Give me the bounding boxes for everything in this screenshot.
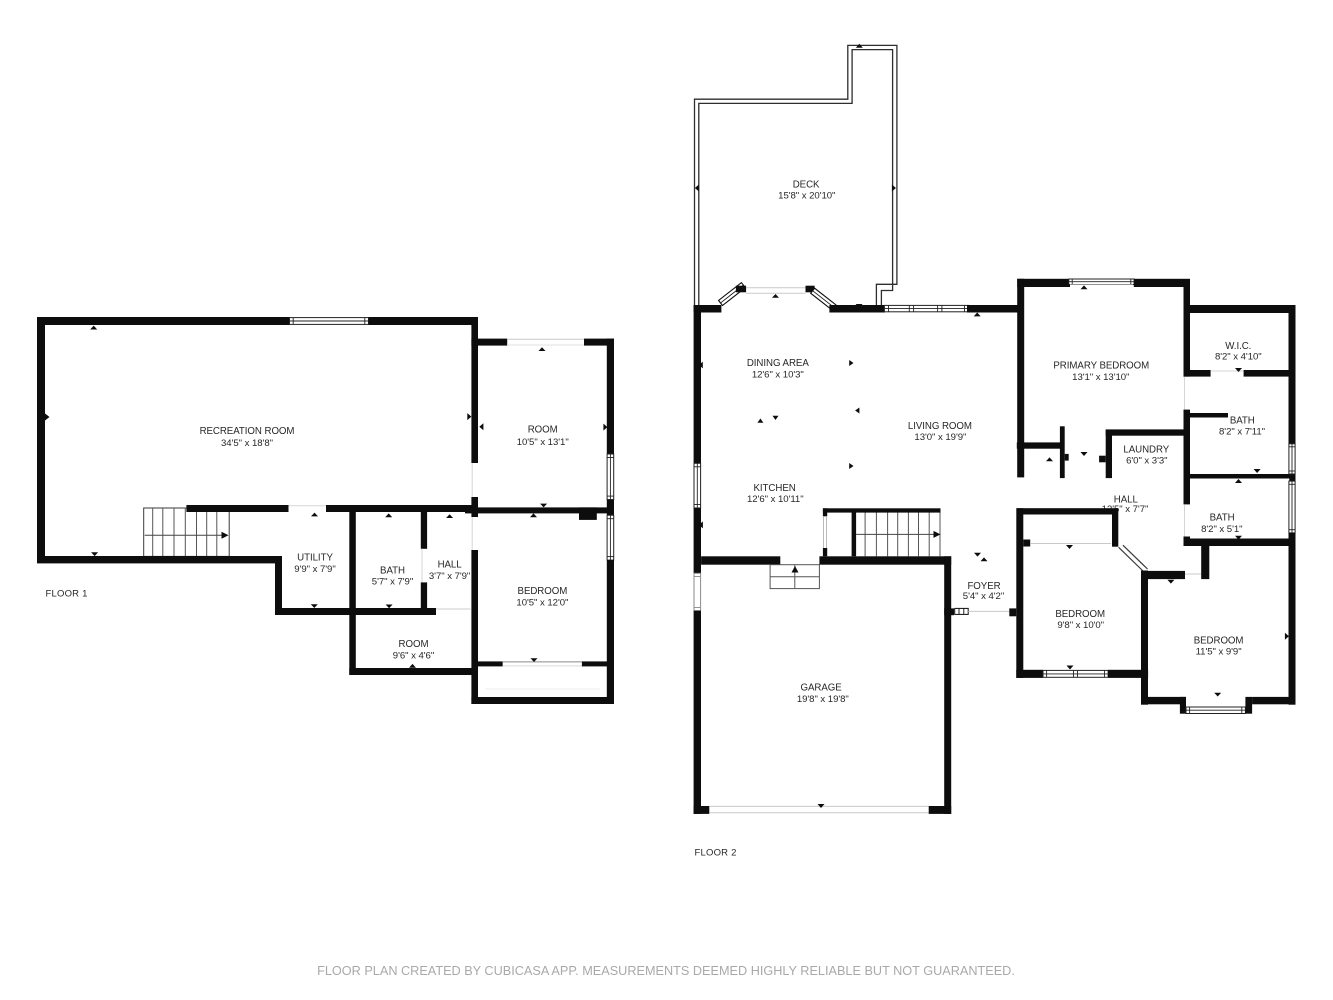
svg-text:9'6" x 4'6": 9'6" x 4'6" [393, 651, 434, 662]
svg-text:HALL: HALL [438, 560, 463, 571]
svg-text:12'6" x 10'3": 12'6" x 10'3" [752, 369, 804, 380]
svg-text:FLOOR 1: FLOOR 1 [46, 589, 88, 600]
svg-text:ROOM: ROOM [528, 425, 558, 436]
svg-text:34'5" x 18'8": 34'5" x 18'8" [221, 438, 273, 449]
svg-text:W.I.C.: W.I.C. [1225, 341, 1251, 352]
svg-text:BATH: BATH [1210, 512, 1235, 523]
svg-text:BATH: BATH [380, 566, 405, 577]
svg-text:8'2" x 7'11": 8'2" x 7'11" [1219, 427, 1265, 438]
svg-text:BEDROOM: BEDROOM [518, 586, 568, 597]
svg-text:5'4" x 4'2": 5'4" x 4'2" [963, 591, 1004, 602]
svg-text:8'2" x 4'10": 8'2" x 4'10" [1215, 352, 1262, 363]
svg-text:RECREATION ROOM: RECREATION ROOM [200, 426, 295, 437]
svg-text:FLOOR 2: FLOOR 2 [695, 848, 737, 859]
svg-text:BEDROOM: BEDROOM [1055, 609, 1105, 620]
svg-text:5'7" x 7'9": 5'7" x 7'9" [372, 577, 413, 588]
svg-text:13'1" x 13'10": 13'1" x 13'10" [1072, 372, 1129, 383]
svg-text:ROOM: ROOM [399, 639, 429, 650]
svg-text:12'6" x 10'11": 12'6" x 10'11" [747, 494, 804, 505]
svg-text:3'7" x 7'9": 3'7" x 7'9" [429, 571, 470, 582]
svg-text:8'2" x 5'1": 8'2" x 5'1" [1201, 524, 1242, 535]
svg-text:19'8" x 19'8": 19'8" x 19'8" [797, 694, 849, 705]
svg-text:DINING AREA: DINING AREA [747, 358, 809, 369]
svg-text:13'0" x 19'9": 13'0" x 19'9" [914, 432, 966, 443]
svg-text:KITCHEN: KITCHEN [754, 483, 796, 494]
svg-text:11'5" x 9'9": 11'5" x 9'9" [1196, 647, 1242, 658]
svg-text:10'5" x 12'0": 10'5" x 12'0" [516, 598, 568, 609]
svg-text:FLOOR PLAN CREATED BY CUBICASA: FLOOR PLAN CREATED BY CUBICASA APP. MEAS… [317, 964, 1015, 978]
svg-text:LAUNDRY: LAUNDRY [1123, 445, 1169, 456]
svg-text:15'8" x 20'10": 15'8" x 20'10" [778, 191, 835, 202]
svg-text:PRIMARY BEDROOM: PRIMARY BEDROOM [1053, 361, 1149, 372]
svg-text:LIVING ROOM: LIVING ROOM [908, 421, 972, 432]
svg-text:DECK: DECK [793, 179, 820, 190]
svg-text:BEDROOM: BEDROOM [1194, 636, 1244, 647]
svg-text:10'5" x 13'1": 10'5" x 13'1" [517, 437, 569, 448]
svg-text:9'9" x 7'9": 9'9" x 7'9" [294, 564, 335, 575]
svg-text:UTILITY: UTILITY [297, 553, 333, 564]
svg-text:6'0" x 3'3": 6'0" x 3'3" [1126, 456, 1167, 467]
svg-text:BATH: BATH [1230, 415, 1255, 426]
svg-text:GARAGE: GARAGE [801, 682, 843, 693]
svg-text:9'8" x 10'0": 9'8" x 10'0" [1057, 620, 1104, 631]
